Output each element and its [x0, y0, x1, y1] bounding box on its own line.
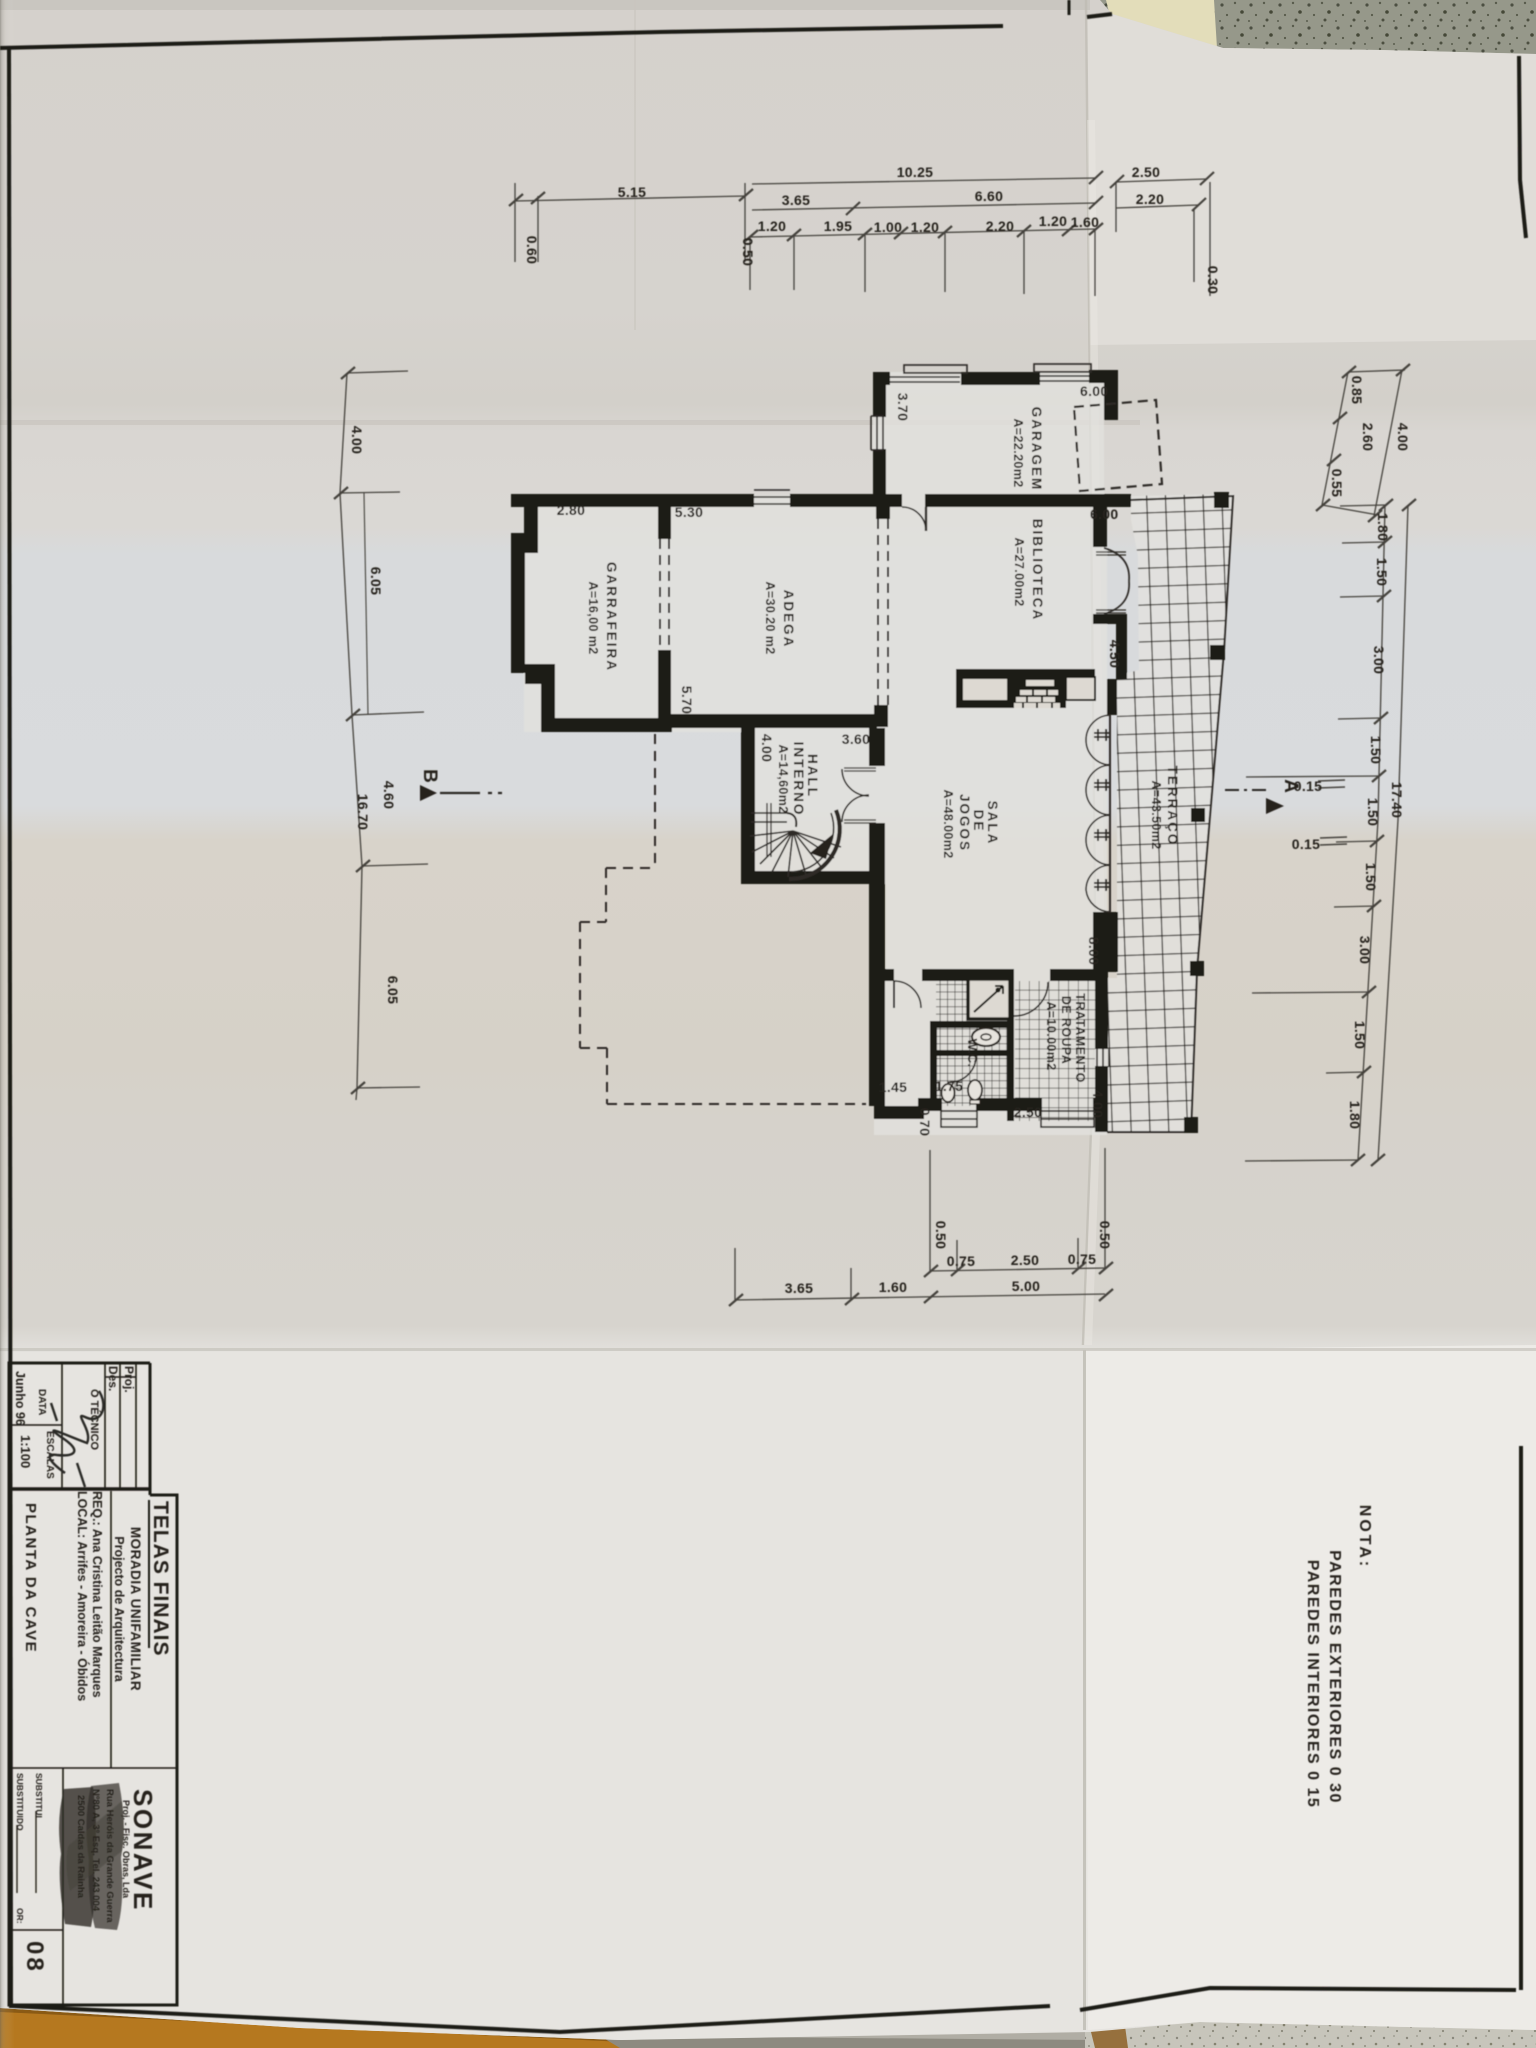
svg-text:Proj.: Proj.	[122, 1366, 136, 1393]
svg-text:3.00: 3.00	[1371, 646, 1387, 674]
svg-text:1.50: 1.50	[1363, 863, 1379, 891]
svg-text:0.75: 0.75	[947, 1253, 975, 1269]
svg-text:W.C.: W.C.	[965, 1039, 979, 1068]
svg-text:2.50: 2.50	[1014, 1104, 1042, 1120]
svg-text:1.20: 1.20	[1039, 213, 1067, 229]
svg-text:A: A	[1280, 779, 1301, 793]
svg-text:0.50: 0.50	[933, 1221, 949, 1249]
svg-text:2.60: 2.60	[1360, 423, 1376, 451]
svg-text:6.05: 6.05	[368, 567, 384, 595]
svg-text:OR:: OR:	[15, 1908, 25, 1924]
svg-text:TELAS FINAIS: TELAS FINAIS	[149, 1501, 172, 1657]
svg-text:ADEGA: ADEGA	[781, 590, 796, 649]
svg-text:4.00: 4.00	[349, 426, 365, 454]
svg-text:GARAGEM: GARAGEM	[1029, 407, 1044, 492]
svg-text:6.00: 6.00	[1080, 383, 1108, 399]
svg-text:A=48.00m2: A=48.00m2	[941, 789, 955, 858]
svg-text:0.30: 0.30	[1205, 266, 1221, 294]
svg-text:DATA: DATA	[36, 1389, 47, 1415]
svg-text:6.05: 6.05	[385, 976, 401, 1004]
svg-text:A=14,60m2: A=14,60m2	[776, 744, 790, 813]
svg-text:Nº80 A, 3º Esq. Tel. 243 004: Nº80 A, 3º Esq. Tel. 243 004	[90, 1789, 101, 1912]
svg-text:Projecto de Arquitectura: Projecto de Arquitectura	[112, 1536, 126, 1682]
svg-text:8.00: 8.00	[1086, 937, 1102, 965]
svg-text:2.80: 2.80	[557, 502, 585, 518]
svg-text:JOGOS: JOGOS	[957, 794, 972, 852]
svg-text:REQ.: Ana Cristina Leitão Marq: REQ.: Ana Cristina Leitão Marques	[90, 1491, 104, 1698]
svg-text:3.00: 3.00	[1357, 936, 1373, 964]
svg-text:1.75: 1.75	[935, 1078, 963, 1094]
svg-text:0.85: 0.85	[1349, 376, 1365, 404]
svg-text:PAREDES INTERIORES 0 15: PAREDES INTERIORES 0 15	[1304, 1560, 1321, 1808]
svg-text:5.70: 5.70	[679, 686, 695, 714]
svg-text:A=10.00m2: A=10.00m2	[1044, 1001, 1058, 1070]
svg-text:0.15: 0.15	[1292, 836, 1320, 852]
svg-text:A=16,00 m2: A=16,00 m2	[586, 581, 600, 654]
svg-text:1.50: 1.50	[1374, 558, 1390, 586]
svg-text:HALL: HALL	[805, 754, 820, 798]
svg-text:6.00: 6.00	[1090, 506, 1118, 522]
svg-text:1.20: 1.20	[758, 218, 786, 234]
svg-text:3.70: 3.70	[895, 393, 911, 421]
svg-text:SONAVE: SONAVE	[128, 1789, 158, 1912]
svg-text:4.00: 4.00	[1395, 423, 1411, 451]
svg-text:BIBLIOTECA: BIBLIOTECA	[1030, 519, 1045, 622]
svg-text:SALA: SALA	[985, 801, 1000, 846]
svg-text:0.50: 0.50	[740, 238, 756, 266]
svg-text:PAREDES EXTERIORES 0 30: PAREDES EXTERIORES 0 30	[1326, 1550, 1343, 1804]
svg-text:A=43.50m2: A=43.50m2	[1149, 780, 1163, 849]
svg-text:0.60: 0.60	[524, 236, 540, 264]
svg-text:1:100: 1:100	[18, 1435, 33, 1468]
svg-text:B: B	[419, 769, 440, 783]
svg-text:0.50: 0.50	[1097, 1221, 1113, 1249]
svg-text:GARRAFEIRA: GARRAFEIRA	[604, 562, 619, 672]
svg-text:INTERNO: INTERNO	[791, 742, 806, 817]
svg-text:NOTA:: NOTA:	[1356, 1505, 1373, 1569]
svg-text:DE ROUPA: DE ROUPA	[1059, 996, 1073, 1064]
svg-text:A=22.20m2: A=22.20m2	[1011, 418, 1025, 487]
svg-text:MORADIA UNIFAMILIAR: MORADIA UNIFAMILIAR	[128, 1527, 143, 1691]
svg-text:2.50: 2.50	[1011, 1252, 1039, 1268]
svg-text:5.15: 5.15	[618, 184, 646, 200]
svg-text:10.25: 10.25	[897, 164, 934, 180]
svg-text:LOCAL: Arrifes - Amoreira - Ób: LOCAL: Arrifes - Amoreira - Óbidos	[75, 1491, 90, 1701]
svg-text:2.20: 2.20	[986, 218, 1014, 234]
svg-text:Rua Heróis da Grande Guerra: Rua Heróis da Grande Guerra	[104, 1789, 115, 1923]
svg-text:5.00: 5.00	[1012, 1278, 1040, 1294]
svg-text:4.00: 4.00	[1090, 1090, 1106, 1118]
svg-text:1.50: 1.50	[1365, 798, 1381, 826]
svg-text:TERRAÇO: TERRAÇO	[1165, 766, 1180, 847]
svg-text:SUBSTITUIDO: SUBSTITUIDO	[15, 1773, 25, 1831]
svg-text:16.70: 16.70	[355, 794, 371, 831]
svg-text:08: 08	[21, 1941, 48, 1974]
svg-text:0.55: 0.55	[1329, 469, 1345, 497]
svg-text:1.50: 1.50	[1352, 1021, 1368, 1049]
svg-text:1.00: 1.00	[874, 219, 902, 235]
svg-text:5.30: 5.30	[675, 504, 703, 520]
svg-text:2.50: 2.50	[1132, 164, 1160, 180]
svg-text:3.60: 3.60	[842, 731, 870, 747]
svg-text:PLANTA DA CAVE: PLANTA DA CAVE	[22, 1503, 39, 1653]
svg-text:0.75: 0.75	[1068, 1251, 1096, 1267]
svg-text:1.80: 1.80	[1347, 1101, 1363, 1129]
svg-text:4.00: 4.00	[759, 734, 775, 762]
svg-text:TRATAMENTO: TRATAMENTO	[1073, 993, 1087, 1082]
svg-text:1.60: 1.60	[879, 1279, 907, 1295]
svg-text:1.45: 1.45	[879, 1079, 907, 1095]
svg-text:4.50: 4.50	[1107, 640, 1123, 668]
svg-text:1.95: 1.95	[824, 218, 852, 234]
svg-text:1.50: 1.50	[1368, 736, 1384, 764]
svg-text:Des.: Des.	[106, 1366, 120, 1391]
svg-text:6.60: 6.60	[975, 188, 1003, 204]
svg-text:3.65: 3.65	[785, 1280, 813, 1296]
svg-text:1.20: 1.20	[911, 219, 939, 235]
svg-text:17.40: 17.40	[1389, 782, 1405, 819]
svg-text:4.60: 4.60	[381, 781, 397, 809]
svg-text:A=27.00m2: A=27.00m2	[1012, 537, 1026, 606]
svg-text:3.65: 3.65	[782, 192, 810, 208]
svg-text:DE: DE	[971, 810, 986, 833]
svg-text:0.70: 0.70	[917, 1108, 933, 1136]
svg-text:2.20: 2.20	[1136, 191, 1164, 207]
svg-text:2500 Caldas da Rainha: 2500 Caldas da Rainha	[75, 1795, 86, 1899]
svg-text:A=30.20 m2: A=30.20 m2	[763, 581, 777, 654]
svg-text:Junho 96: Junho 96	[13, 1371, 27, 1426]
svg-text:1.60: 1.60	[1071, 214, 1099, 230]
svg-text:1.80: 1.80	[1375, 513, 1391, 541]
